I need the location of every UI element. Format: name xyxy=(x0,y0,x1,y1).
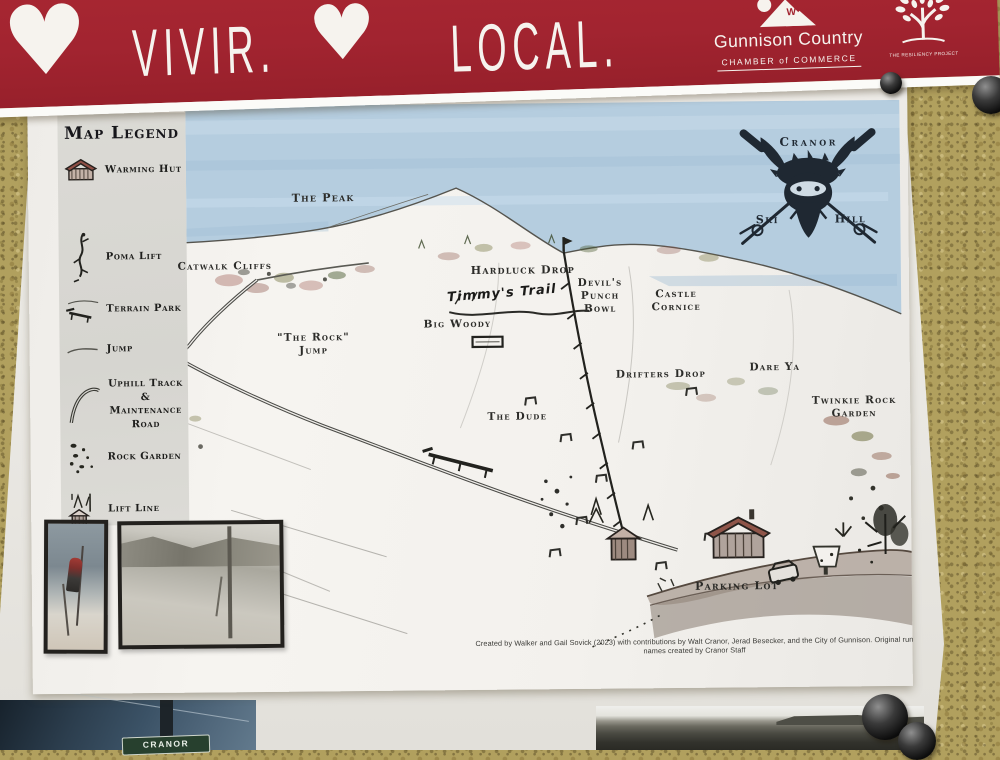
legend-title: Map Legend xyxy=(57,123,185,144)
legend-item-rock-garden: Rock Garden xyxy=(64,439,184,476)
chamber-subtitle: CHAMBER of COMMERCE xyxy=(717,51,861,72)
mountain-sun-icon: W xyxy=(755,0,820,29)
inset-photo-skier xyxy=(44,520,109,654)
terrain-park-icon xyxy=(63,296,101,324)
trail-label-dare-ya: Dare Ya xyxy=(738,361,812,375)
trail-label-big-woody: Big Woody xyxy=(413,318,501,332)
legend-label: Rock Garden xyxy=(108,450,182,464)
legend-item-jump: Jump xyxy=(64,341,184,358)
cranor-logo-name: Cranor xyxy=(764,134,854,149)
push-pin xyxy=(898,722,936,760)
legend-label: Jump xyxy=(107,342,133,356)
street-sign: CRANOR xyxy=(122,734,211,755)
uphill-track-icon xyxy=(64,383,102,427)
inset-photo-slope xyxy=(117,520,284,650)
rock-garden-icon xyxy=(64,440,102,476)
slope-ridge xyxy=(121,532,279,568)
legend-item-uphill-track: Uphill Track & Maintenance Road xyxy=(64,377,185,432)
heart-icon: ♥ xyxy=(0,0,89,90)
legend-label: Terrain Park xyxy=(106,302,181,316)
trail-label-the-rock-jump: "The Rock" Jump xyxy=(263,331,363,358)
corkboard-photo: { "banner": { "heart": "♥", "vivir": "VI… xyxy=(0,0,1000,750)
legend-item-terrain-park: Terrain Park xyxy=(63,295,183,324)
trail-label-the-dude: The Dude xyxy=(480,410,554,424)
map-legend: Map Legend Warming Hut Poma Lift xyxy=(57,113,189,526)
trail-label-catwalk-cliffs: Catwalk Cliffs xyxy=(177,260,273,274)
cranor-logo-ski: Ski xyxy=(744,213,790,226)
push-pin xyxy=(972,76,1000,114)
banner-word-vivir: VIVIR. xyxy=(131,9,277,92)
chamber-of-commerce-logo: W Gunnison Country CHAMBER of COMMERCE xyxy=(697,0,879,72)
ski-map-sheet: Map Legend Warming Hut Poma Lift xyxy=(27,84,913,694)
poma-lift-icon xyxy=(62,232,100,284)
banner-word-local: LOCAL. xyxy=(449,4,620,88)
trail-label-drifters-drop: Drifters Drop xyxy=(614,368,708,382)
heart-icon: ♥ xyxy=(307,0,378,72)
chamber-letter: W xyxy=(786,7,796,18)
trail-label-devils-punch-bowl: Devil's Punch Bowl xyxy=(569,276,631,316)
legend-item-poma-lift: Poma Lift xyxy=(62,231,182,284)
legend-label: Poma Lift xyxy=(106,250,162,264)
legend-label: Warming Hut xyxy=(105,163,182,177)
trail-label-parking-lot: Parking Lot xyxy=(680,579,794,594)
warming-hut-icon xyxy=(62,158,100,184)
resiliency-project-logo: THE RESILIENCY PROJECT xyxy=(879,0,967,58)
chamber-name: Gunnison Country xyxy=(698,26,879,53)
legend-item-warming-hut: Warming Hut xyxy=(62,157,182,184)
trail-label-the-peak: The Peak xyxy=(278,191,368,206)
lift-pole-small xyxy=(215,576,222,616)
tree-icon xyxy=(893,0,953,47)
push-pin xyxy=(880,72,902,94)
ski-pole-shape xyxy=(62,584,69,636)
legend-label: Uphill Track & Maintenance Road xyxy=(107,377,185,432)
resiliency-name: THE RESILIENCY PROJECT xyxy=(881,50,967,58)
legend-label: Lift Line xyxy=(108,502,160,516)
cranor-logo-hill: Hill xyxy=(824,212,876,225)
trail-label-castle-cornice: Castle Cornice xyxy=(635,288,717,315)
photo-cranor-street-sign: CRANOR xyxy=(0,700,256,750)
jump-icon xyxy=(64,342,102,358)
trail-label-hardluck-drop: Hardluck Drop xyxy=(465,263,581,278)
trail-label-twinkie-rock-garden: Twinkie Rock Garden xyxy=(802,394,906,421)
